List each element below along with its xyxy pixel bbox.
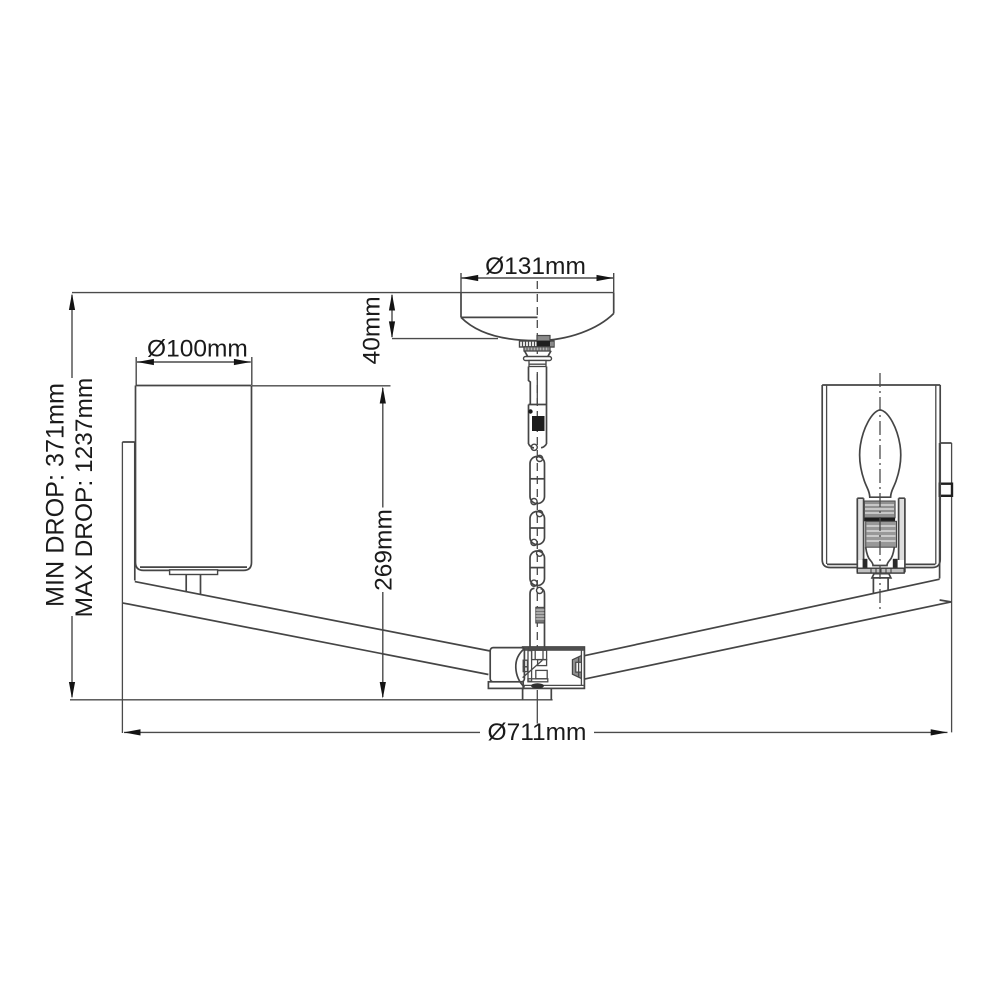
svg-text:MIN DROP: 371mm: MIN DROP: 371mm	[42, 383, 70, 607]
svg-text:Ø131mm: Ø131mm	[485, 253, 586, 280]
svg-text:Ø100mm: Ø100mm	[147, 336, 248, 363]
svg-text:269mm: 269mm	[371, 509, 398, 591]
svg-text:40mm: 40mm	[359, 296, 386, 364]
svg-text:MAX DROP: 1237mm: MAX DROP: 1237mm	[71, 378, 98, 618]
